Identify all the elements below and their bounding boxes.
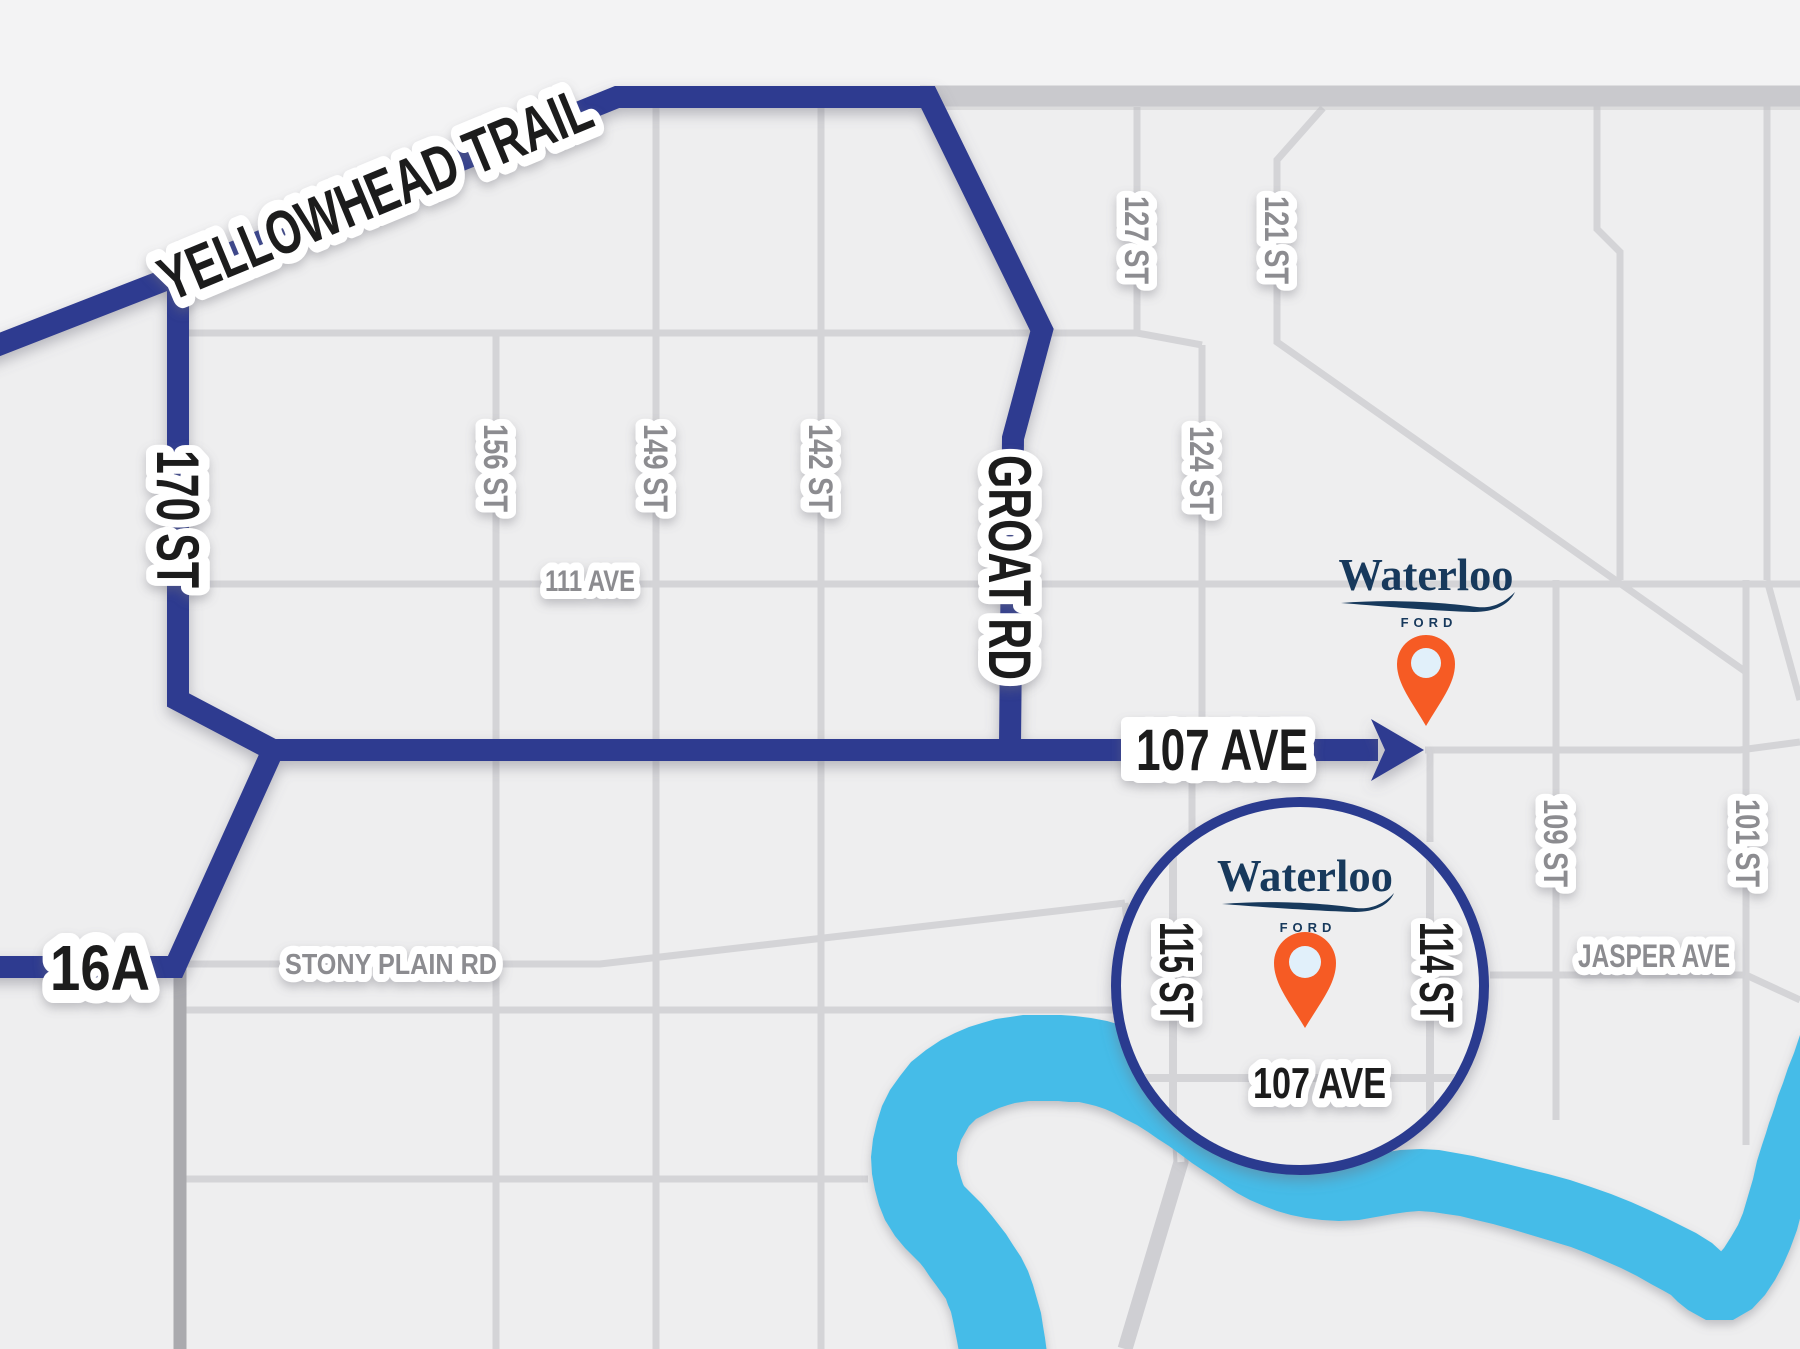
svg-text:101 ST: 101 ST: [1728, 799, 1766, 887]
svg-text:149 ST: 149 ST: [636, 424, 674, 512]
svg-text:107 AVE: 107 AVE: [1253, 1059, 1386, 1108]
svg-text:107 AVE: 107 AVE: [1136, 718, 1308, 783]
svg-text:JASPER AVE: JASPER AVE: [1578, 938, 1730, 974]
svg-text:121 ST: 121 ST: [1257, 196, 1295, 284]
svg-text:142 ST: 142 ST: [801, 424, 839, 512]
svg-text:STONY PLAIN RD: STONY PLAIN RD: [285, 949, 497, 981]
svg-text:115 ST: 115 ST: [1149, 922, 1202, 1022]
svg-text:109 ST: 109 ST: [1536, 799, 1574, 887]
svg-text:GROAT RD: GROAT RD: [976, 455, 1043, 680]
svg-text:Waterloo: Waterloo: [1217, 851, 1393, 901]
svg-text:111 AVE: 111 AVE: [545, 565, 635, 598]
svg-text:127 ST: 127 ST: [1117, 196, 1155, 284]
svg-text:FORD: FORD: [1401, 615, 1458, 630]
svg-text:170 ST: 170 ST: [144, 450, 211, 588]
svg-text:Waterloo: Waterloo: [1339, 550, 1514, 600]
svg-text:114 ST: 114 ST: [1409, 922, 1462, 1022]
svg-text:124 ST: 124 ST: [1182, 426, 1220, 514]
svg-text:16A: 16A: [50, 932, 150, 1004]
svg-text:156 ST: 156 ST: [476, 424, 514, 512]
